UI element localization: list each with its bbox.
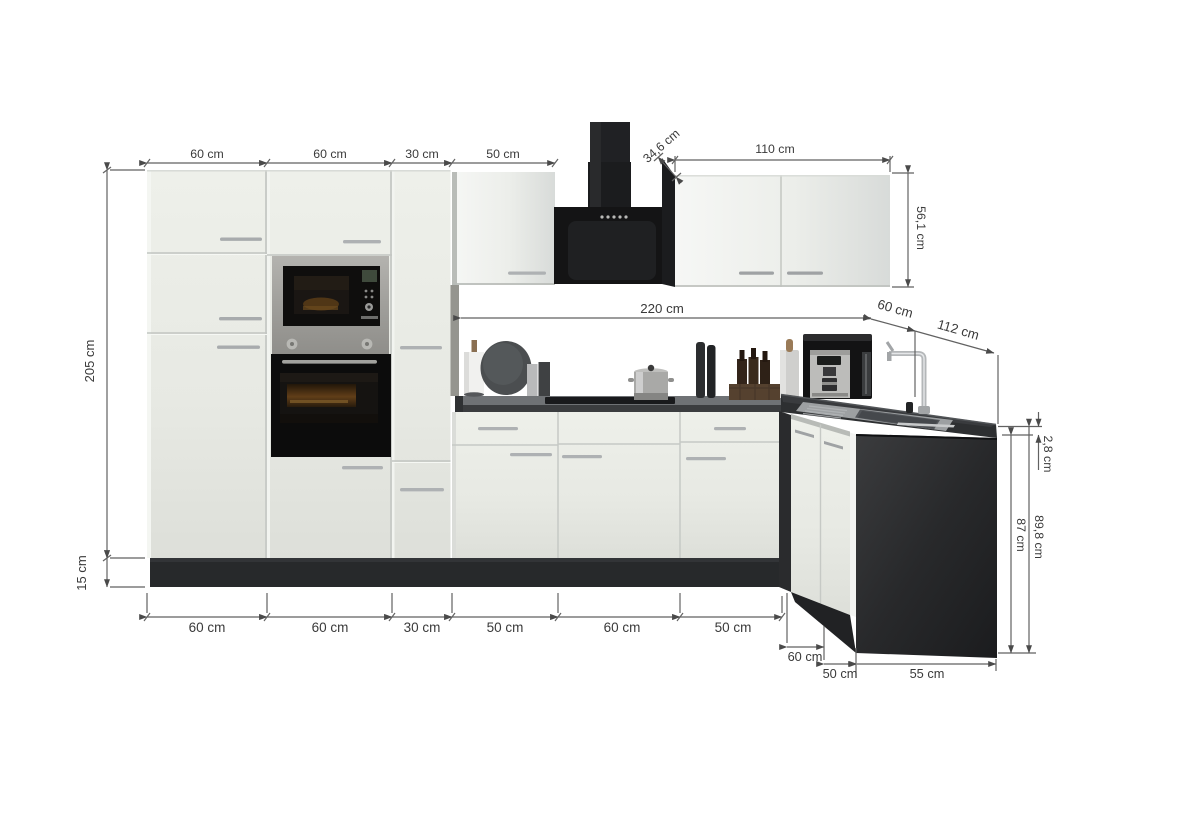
svg-text:2,8 cm: 2,8 cm	[1041, 436, 1055, 473]
svg-text:60 cm: 60 cm	[189, 620, 226, 635]
svg-text:50 cm: 50 cm	[715, 620, 752, 635]
svg-text:89,8 cm: 89,8 cm	[1032, 515, 1046, 559]
svg-text:60 cm: 60 cm	[190, 147, 224, 161]
svg-text:15 cm: 15 cm	[74, 555, 89, 590]
svg-text:87 cm: 87 cm	[1014, 518, 1028, 552]
svg-text:50 cm: 50 cm	[487, 620, 524, 635]
svg-text:50 cm: 50 cm	[823, 666, 858, 681]
svg-text:55 cm: 55 cm	[910, 666, 945, 681]
svg-text:110 cm: 110 cm	[755, 142, 794, 156]
svg-text:60 cm: 60 cm	[313, 147, 347, 161]
svg-text:60 cm: 60 cm	[312, 620, 349, 635]
svg-text:205 cm: 205 cm	[82, 340, 97, 383]
svg-text:56,1 cm: 56,1 cm	[914, 206, 928, 250]
svg-text:60 cm: 60 cm	[604, 620, 641, 635]
svg-text:220 cm: 220 cm	[640, 301, 684, 316]
svg-text:50 cm: 50 cm	[486, 147, 520, 161]
svg-text:60 cm: 60 cm	[788, 649, 823, 664]
svg-text:30 cm: 30 cm	[405, 147, 439, 161]
svg-text:30 cm: 30 cm	[404, 620, 441, 635]
